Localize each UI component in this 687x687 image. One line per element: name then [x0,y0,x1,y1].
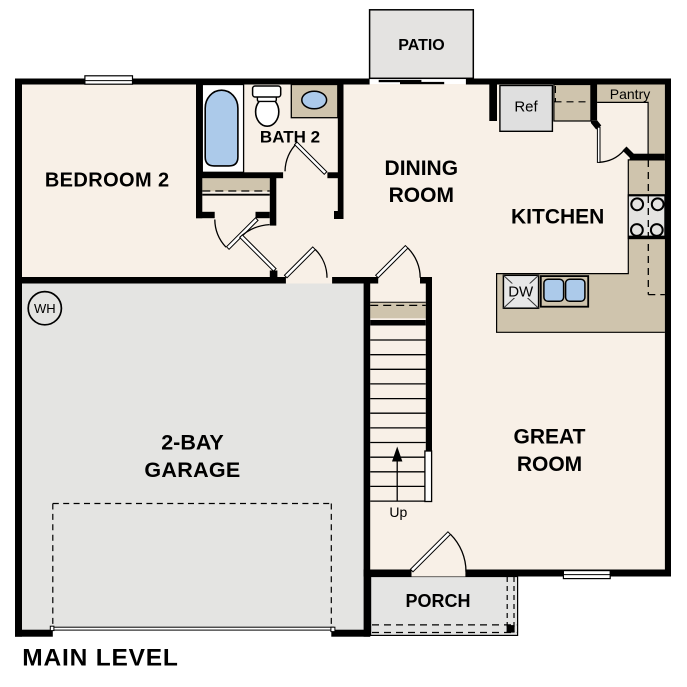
svg-text:GREAT: GREAT [514,425,586,448]
svg-text:DINING: DINING [385,157,459,180]
svg-text:MAIN LEVEL: MAIN LEVEL [22,644,178,671]
svg-text:DW: DW [508,284,534,301]
svg-text:KITCHEN: KITCHEN [511,205,604,228]
svg-text:PORCH: PORCH [405,591,470,611]
svg-text:GARAGE: GARAGE [144,458,240,482]
svg-text:Up: Up [389,504,407,520]
svg-text:ROOM: ROOM [517,453,582,476]
svg-text:BEDROOM 2: BEDROOM 2 [45,170,170,192]
svg-text:ROOM: ROOM [389,184,454,207]
svg-text:WH: WH [34,301,56,316]
svg-text:Ref: Ref [514,99,538,116]
svg-text:PATIO: PATIO [398,37,445,54]
svg-text:BATH 2: BATH 2 [260,127,320,146]
svg-text:Pantry: Pantry [610,86,650,102]
svg-text:2-BAY: 2-BAY [161,431,224,455]
